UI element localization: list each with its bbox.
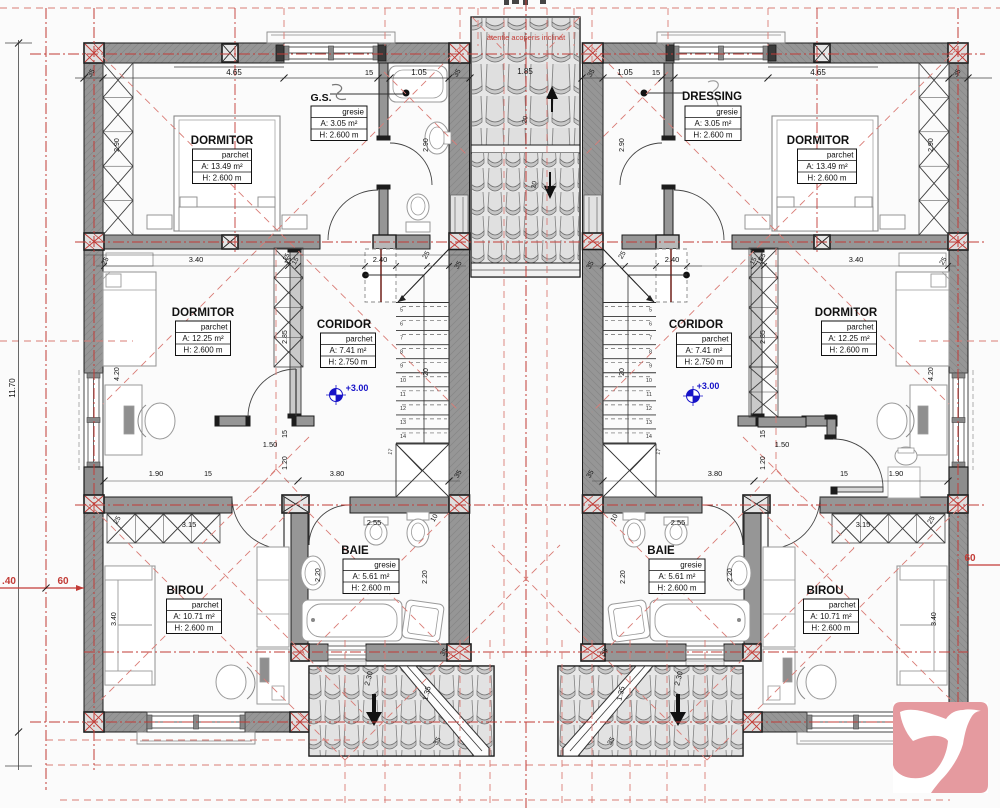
svg-text:A: 13.49 m²: A: 13.49 m² bbox=[806, 162, 848, 171]
svg-text:A: 13.49 m²: A: 13.49 m² bbox=[201, 162, 243, 171]
svg-text:15: 15 bbox=[365, 68, 373, 77]
svg-text:A: 7.41 m²: A: 7.41 m² bbox=[686, 346, 723, 355]
svg-text:17: 17 bbox=[388, 448, 395, 455]
svg-text:14: 14 bbox=[646, 434, 652, 440]
svg-text:parchet: parchet bbox=[201, 323, 228, 332]
svg-text:H: 2.600 m: H: 2.600 m bbox=[319, 131, 358, 140]
svg-text:2.20: 2.20 bbox=[315, 568, 322, 582]
svg-text:H: 2.750 m: H: 2.750 m bbox=[684, 358, 723, 367]
svg-text:gresie: gresie bbox=[374, 561, 396, 570]
svg-text:12: 12 bbox=[400, 406, 406, 412]
svg-text:parchet: parchet bbox=[192, 601, 219, 610]
svg-text:H: 2.600 m: H: 2.600 m bbox=[829, 346, 868, 355]
svg-text:1.90: 1.90 bbox=[889, 469, 904, 478]
svg-text:1.05: 1.05 bbox=[617, 68, 633, 77]
svg-text:parchet: parchet bbox=[222, 151, 249, 160]
svg-text:A: 10.71 m²: A: 10.71 m² bbox=[173, 612, 215, 621]
svg-text:60: 60 bbox=[964, 553, 976, 564]
svg-text:H: 2.600 m: H: 2.600 m bbox=[174, 624, 213, 633]
svg-text:A: 12.25 m²: A: 12.25 m² bbox=[828, 334, 870, 343]
svg-text:60: 60 bbox=[57, 576, 69, 587]
svg-text:H: 2.600 m: H: 2.600 m bbox=[351, 584, 390, 593]
svg-text:A: 3.05 m²: A: 3.05 m² bbox=[695, 119, 732, 128]
svg-text:H: 2.600 m: H: 2.600 m bbox=[693, 131, 732, 140]
svg-text:2.90: 2.90 bbox=[619, 138, 626, 152]
svg-text:BAIE: BAIE bbox=[647, 545, 675, 557]
svg-text:A: 7.41 m²: A: 7.41 m² bbox=[330, 346, 367, 355]
svg-text:6: 6 bbox=[400, 322, 403, 328]
svg-text:10: 10 bbox=[646, 378, 652, 384]
svg-text:2.20: 2.20 bbox=[727, 568, 734, 582]
svg-text:parchet: parchet bbox=[702, 335, 729, 344]
svg-text:11: 11 bbox=[400, 392, 406, 398]
svg-text:3.40: 3.40 bbox=[849, 255, 864, 264]
svg-text:3.80: 3.80 bbox=[708, 469, 723, 478]
svg-text:2.20: 2.20 bbox=[620, 570, 627, 584]
svg-text:15: 15 bbox=[652, 68, 660, 77]
svg-text:H: 2.600 m: H: 2.600 m bbox=[807, 174, 846, 183]
svg-text:+3.00: +3.00 bbox=[346, 383, 369, 393]
svg-text:17: 17 bbox=[656, 448, 663, 455]
svg-text:11.70: 11.70 bbox=[8, 378, 17, 398]
svg-text:20: 20 bbox=[423, 368, 430, 376]
svg-text:2.90: 2.90 bbox=[423, 138, 430, 152]
svg-text:H: 2.600 m: H: 2.600 m bbox=[811, 624, 850, 633]
svg-text:5: 5 bbox=[400, 308, 403, 314]
svg-text:DORMITOR: DORMITOR bbox=[815, 307, 878, 319]
svg-text:3.40: 3.40 bbox=[189, 255, 204, 264]
svg-text:4.20: 4.20 bbox=[114, 367, 121, 381]
svg-text:8: 8 bbox=[649, 350, 652, 356]
svg-text:H: 2.600 m: H: 2.600 m bbox=[202, 174, 241, 183]
svg-text:15: 15 bbox=[282, 430, 289, 438]
svg-text:parchet: parchet bbox=[346, 335, 373, 344]
svg-text:13: 13 bbox=[400, 420, 406, 426]
svg-text:13: 13 bbox=[646, 420, 652, 426]
svg-text:3.40: 3.40 bbox=[931, 612, 938, 626]
svg-text:.40: .40 bbox=[2, 576, 16, 587]
svg-text:DORMITOR: DORMITOR bbox=[172, 307, 235, 319]
svg-text:15: 15 bbox=[840, 471, 848, 478]
svg-text:10: 10 bbox=[400, 378, 406, 384]
svg-text:BIROU: BIROU bbox=[806, 585, 843, 597]
svg-text:4.20: 4.20 bbox=[928, 367, 935, 381]
svg-text:A: 3.05 m²: A: 3.05 m² bbox=[321, 119, 358, 128]
svg-text:BAIE: BAIE bbox=[341, 545, 369, 557]
svg-text:7: 7 bbox=[400, 336, 403, 342]
svg-text:atentie acoperis inclinat: atentie acoperis inclinat bbox=[487, 33, 566, 42]
svg-text:2.85: 2.85 bbox=[760, 330, 767, 344]
svg-text:3.80: 3.80 bbox=[330, 469, 345, 478]
svg-text:2.85: 2.85 bbox=[282, 330, 289, 344]
svg-text:9: 9 bbox=[649, 364, 652, 370]
svg-text:DRESSING: DRESSING bbox=[682, 91, 742, 103]
svg-text:2.55: 2.55 bbox=[367, 518, 382, 527]
svg-text:parchet: parchet bbox=[847, 323, 874, 332]
svg-text:20: 20 bbox=[619, 368, 626, 376]
svg-text:9: 9 bbox=[400, 364, 403, 370]
svg-text:2.40: 2.40 bbox=[665, 255, 680, 264]
svg-text:parchet: parchet bbox=[829, 601, 856, 610]
svg-text:11: 11 bbox=[646, 392, 652, 398]
svg-text:2.90: 2.90 bbox=[114, 138, 121, 152]
svg-text:CORIDOR: CORIDOR bbox=[317, 319, 372, 331]
svg-text:1.50: 1.50 bbox=[263, 440, 278, 449]
svg-text:H: 2.600 m: H: 2.600 m bbox=[657, 584, 696, 593]
svg-text:1.50: 1.50 bbox=[775, 440, 790, 449]
svg-text:DORMITOR: DORMITOR bbox=[787, 135, 850, 147]
svg-text:1.05: 1.05 bbox=[411, 68, 427, 77]
svg-text:2.90: 2.90 bbox=[928, 138, 935, 152]
svg-text:1.20: 1.20 bbox=[282, 456, 289, 470]
svg-text:H: 2.600 m: H: 2.600 m bbox=[183, 346, 222, 355]
svg-text:A: 10.71 m²: A: 10.71 m² bbox=[810, 612, 852, 621]
svg-text:15: 15 bbox=[204, 471, 212, 478]
svg-text:15: 15 bbox=[760, 430, 767, 438]
svg-text:A: 5.61 m²: A: 5.61 m² bbox=[659, 572, 696, 581]
svg-text:6: 6 bbox=[649, 322, 652, 328]
svg-text:CORIDOR: CORIDOR bbox=[669, 319, 724, 331]
svg-text:7: 7 bbox=[649, 336, 652, 342]
svg-text:8: 8 bbox=[400, 350, 403, 356]
svg-text:G.S.: G.S. bbox=[310, 92, 331, 104]
svg-text:BIROU: BIROU bbox=[166, 585, 203, 597]
svg-text:A: 5.61 m²: A: 5.61 m² bbox=[353, 572, 390, 581]
svg-text:3.15: 3.15 bbox=[182, 520, 197, 529]
svg-text:1.90: 1.90 bbox=[149, 469, 164, 478]
svg-text:2.20: 2.20 bbox=[422, 570, 429, 584]
svg-text:+3.00: +3.00 bbox=[697, 381, 720, 391]
svg-text:5: 5 bbox=[649, 308, 652, 314]
svg-text:DORMITOR: DORMITOR bbox=[191, 135, 254, 147]
svg-text:12: 12 bbox=[646, 406, 652, 412]
svg-text:gresie: gresie bbox=[342, 108, 364, 117]
svg-text:H: 2.750 m: H: 2.750 m bbox=[328, 358, 367, 367]
svg-text:4.65: 4.65 bbox=[226, 68, 242, 77]
svg-text:3.40: 3.40 bbox=[111, 612, 118, 626]
svg-text:2.55: 2.55 bbox=[671, 518, 686, 527]
svg-text:3.15: 3.15 bbox=[856, 520, 871, 529]
svg-text:gresie: gresie bbox=[680, 561, 702, 570]
svg-text:1.20: 1.20 bbox=[760, 456, 767, 470]
svg-text:gresie: gresie bbox=[716, 108, 738, 117]
svg-text:A: 12.25 m²: A: 12.25 m² bbox=[182, 334, 224, 343]
svg-text:4.65: 4.65 bbox=[810, 68, 826, 77]
svg-text:parchet: parchet bbox=[827, 151, 854, 160]
svg-text:1.85: 1.85 bbox=[517, 67, 533, 76]
svg-text:2.40: 2.40 bbox=[373, 255, 388, 264]
svg-text:14: 14 bbox=[400, 434, 406, 440]
